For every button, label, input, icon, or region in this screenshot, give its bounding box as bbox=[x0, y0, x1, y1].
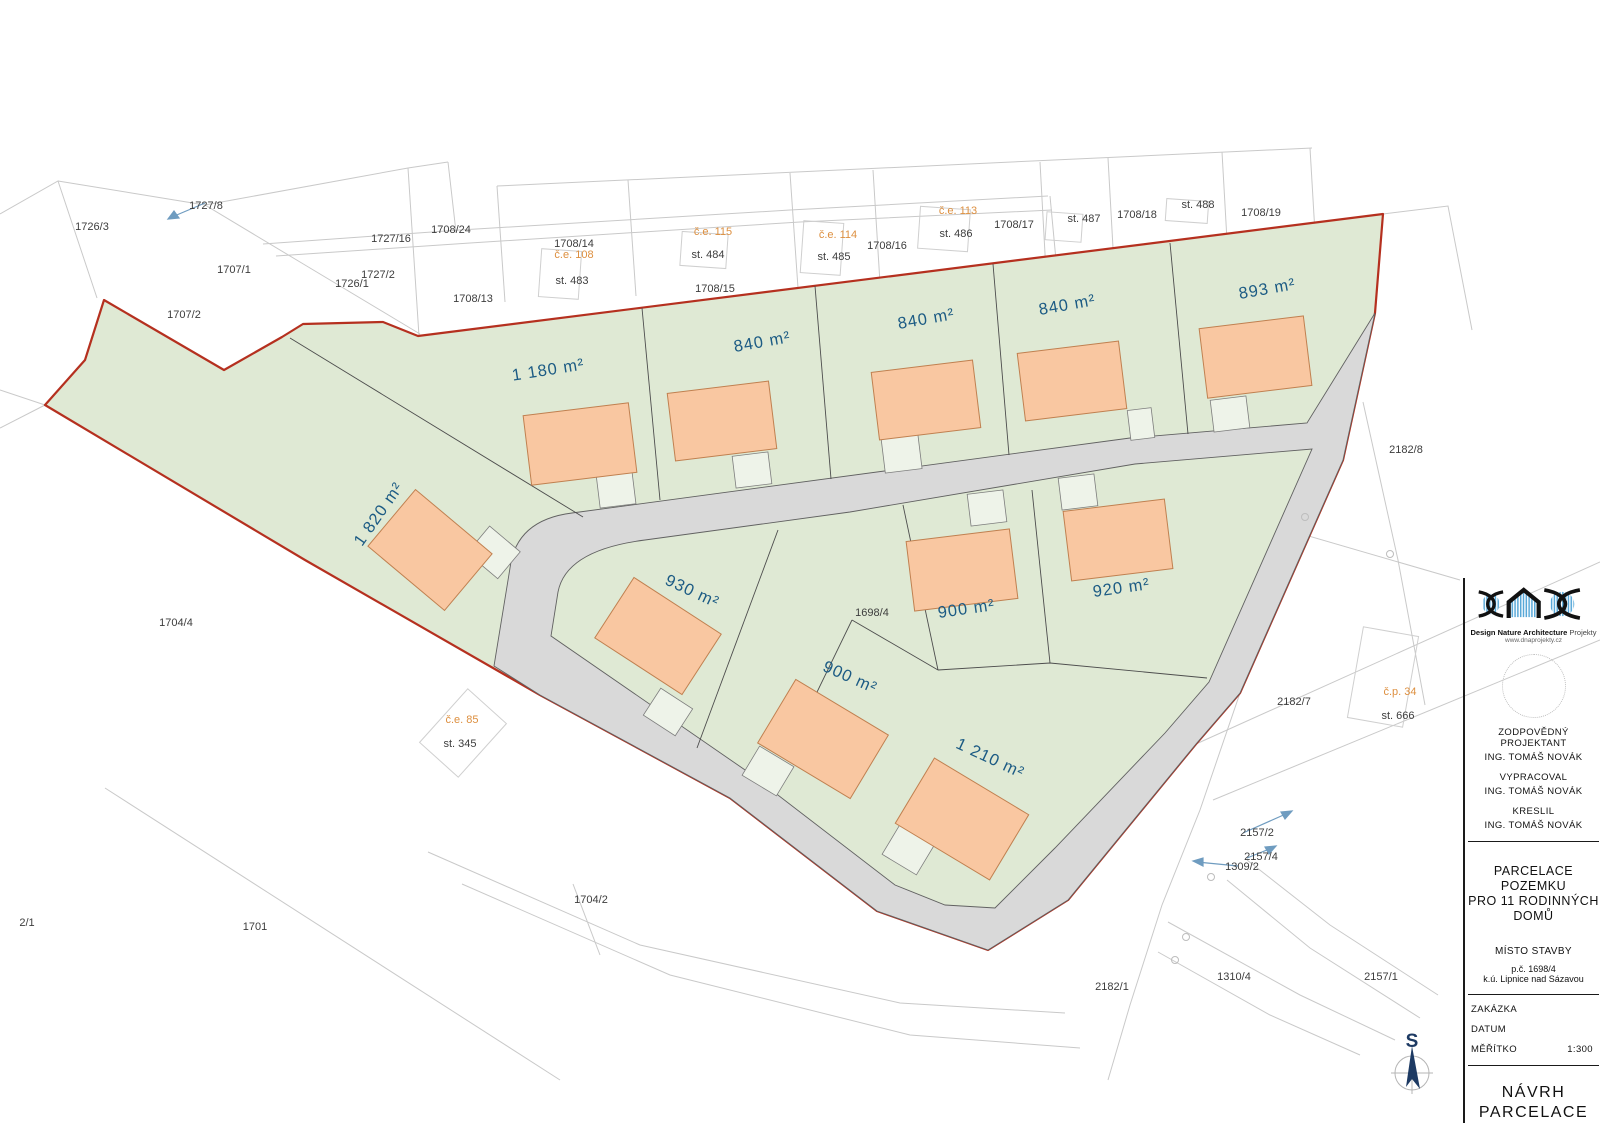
project-title: PARCELACE POZEMKU PRO 11 RODINNÝCH DOMŮ bbox=[1468, 864, 1599, 924]
parcel-number-label: 1704/2 bbox=[574, 894, 608, 906]
building-number-label: č.e. 113 bbox=[939, 205, 977, 217]
parcel-number-label: 1701 bbox=[243, 921, 267, 933]
parcel-number-label: 1707/1 bbox=[217, 264, 251, 276]
parcel-number-label: 1698/4 bbox=[855, 607, 889, 619]
parcel-number-label: st. 345 bbox=[443, 738, 476, 750]
company-logo bbox=[1468, 585, 1599, 628]
place-parcel-number: p.č. 1698/4 bbox=[1468, 964, 1599, 974]
parcel-number-label: 1707/2 bbox=[167, 309, 201, 321]
driveway bbox=[967, 490, 1007, 526]
site-boundary bbox=[45, 214, 1383, 950]
brand-bold: Design Nature Architecture bbox=[1470, 628, 1567, 637]
parcel-number-label: 1310/4 bbox=[1217, 971, 1251, 983]
driveway bbox=[732, 452, 772, 488]
parcel-number-label: st. 485 bbox=[817, 251, 850, 263]
parcel-number-label: st. 488 bbox=[1181, 199, 1214, 211]
dna-house-logo-icon bbox=[1478, 590, 1579, 618]
parcel-number-label: 2157/1 bbox=[1364, 971, 1398, 983]
scale-value: 1:300 bbox=[1567, 1044, 1593, 1055]
role-value: ING. TOMÁŠ NOVÁK bbox=[1468, 786, 1599, 797]
parcel-number-label: 1727/8 bbox=[189, 200, 223, 212]
divider bbox=[1468, 1065, 1599, 1066]
drawing-name-line: NÁVRH bbox=[1468, 1083, 1599, 1103]
project-title-line: PRO 11 RODINNÝCH bbox=[1468, 894, 1599, 909]
north-arrow: S bbox=[1391, 1031, 1433, 1094]
parcel-number-label: 2157/2 bbox=[1240, 827, 1274, 839]
parcel-number-label: 2182/7 bbox=[1277, 696, 1311, 708]
parcel-number-label: 1708/19 bbox=[1241, 207, 1281, 219]
parcel-number-label: 2/1 bbox=[19, 917, 34, 929]
role-label: VYPRACOVAL bbox=[1468, 772, 1599, 783]
compass-needle bbox=[1406, 1046, 1420, 1089]
role-value: ING. TOMÁŠ NOVÁK bbox=[1468, 820, 1599, 831]
parcel-number-label: 2182/8 bbox=[1389, 444, 1423, 456]
brand-light: Projekty bbox=[1569, 628, 1596, 637]
divider bbox=[1468, 994, 1599, 995]
parcel-number-label: 1708/15 bbox=[695, 283, 735, 295]
house-footprint bbox=[1063, 499, 1173, 581]
place-label: MÍSTO STAVBY bbox=[1468, 946, 1599, 957]
order-label: ZAKÁZKA bbox=[1471, 1004, 1517, 1015]
parcel-number-label: st. 666 bbox=[1381, 710, 1414, 722]
parcel-number-label: st. 486 bbox=[939, 228, 972, 240]
scale-label: MĚŘÍTKO bbox=[1471, 1044, 1517, 1055]
compass-north-label: S bbox=[1406, 1031, 1419, 1052]
stamp-placeholder bbox=[1502, 654, 1566, 718]
parcel-number-label: st. 483 bbox=[555, 275, 588, 287]
date-row: DATUM bbox=[1468, 1024, 1599, 1035]
role-label: ZODPOVĚDNÝ PROJEKTANT bbox=[1468, 727, 1599, 749]
drawing-name-line: PARCELACE bbox=[1468, 1103, 1599, 1123]
parcel-number-label: st. 487 bbox=[1067, 213, 1100, 225]
parcel-number-label: st. 484 bbox=[691, 249, 724, 261]
parcel-number-label: 1726/1 bbox=[335, 278, 369, 290]
driveway bbox=[1127, 408, 1154, 441]
building-number-label: č.e. 108 bbox=[554, 249, 593, 261]
parcel-number-label: 1309/2 bbox=[1225, 861, 1259, 873]
house-footprint bbox=[906, 529, 1018, 611]
parcel-number-label: 1708/13 bbox=[453, 293, 493, 305]
parcel-number-label: 1708/24 bbox=[431, 224, 471, 236]
driveway bbox=[1058, 474, 1098, 510]
house-footprint bbox=[667, 381, 777, 461]
parcel-number-label: 1708/16 bbox=[867, 240, 907, 252]
project-title-line: DOMŮ bbox=[1468, 909, 1599, 924]
house-footprint bbox=[871, 360, 981, 440]
project-title-line: PARCELACE POZEMKU bbox=[1468, 864, 1599, 894]
building-number-label: č.e. 85 bbox=[445, 714, 478, 726]
drawing-name: NÁVRH PARCELACE bbox=[1468, 1083, 1599, 1123]
building-number-label: č.e. 114 bbox=[819, 229, 857, 241]
parcel-number-label: 1704/4 bbox=[159, 617, 193, 629]
house-footprint bbox=[1199, 316, 1312, 398]
title-block: Design Nature Architecture Projekty www.… bbox=[1463, 578, 1600, 1123]
order-row: ZAKÁZKA bbox=[1468, 1004, 1599, 1015]
role-value: ING. TOMÁŠ NOVÁK bbox=[1468, 752, 1599, 763]
driveway bbox=[1210, 396, 1250, 432]
building-number-label: č.p. 34 bbox=[1383, 686, 1416, 698]
parcel-number-label: 2182/1 bbox=[1095, 981, 1129, 993]
company-name: Design Nature Architecture Projekty bbox=[1468, 628, 1599, 637]
building-number-label: č.e. 115 bbox=[694, 226, 732, 238]
scale-row: MĚŘÍTKO 1:300 bbox=[1468, 1044, 1599, 1055]
cadastral-map: S 1726/31727/81707/11727/161708/241727/2… bbox=[0, 0, 1600, 1123]
parcel-number-label: 1726/3 bbox=[75, 221, 109, 233]
parcel-number-label: 1708/18 bbox=[1117, 209, 1157, 221]
site-plan-sheet: S 1726/31727/81707/11727/161708/241727/2… bbox=[0, 0, 1600, 1123]
date-label: DATUM bbox=[1471, 1024, 1506, 1035]
company-website: www.dnaprojekty.cz bbox=[1468, 637, 1599, 645]
parcel-number-label: 1708/17 bbox=[994, 219, 1034, 231]
role-label: KRESLIL bbox=[1468, 806, 1599, 817]
divider bbox=[1468, 841, 1599, 842]
house-footprint bbox=[523, 403, 637, 485]
place-cadastre: k.ú. Lipnice nad Sázavou bbox=[1468, 974, 1599, 984]
parcel-number-label: 1727/16 bbox=[371, 233, 411, 245]
house-footprint bbox=[1017, 341, 1127, 421]
